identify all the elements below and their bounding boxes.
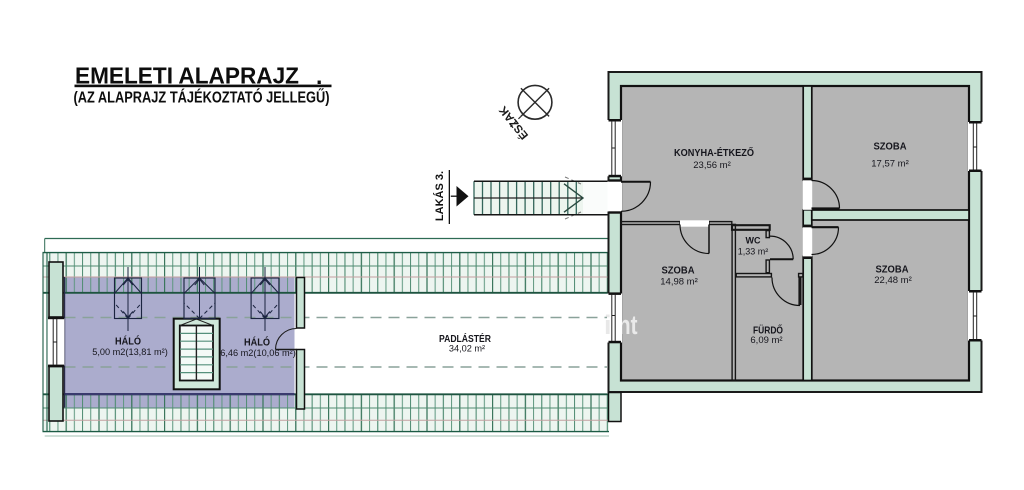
svg-text:14,98 m²: 14,98 m² [660,277,698,288]
svg-text:34,02 m²: 34,02 m² [449,344,485,354]
svg-text:5,00 m2(13,81 m²): 5,00 m2(13,81 m²) [92,347,168,357]
svg-text:22,48 m²: 22,48 m² [874,275,912,286]
svg-text:(AZ ALAPRAJZ TÁJÉKOZTATÓ JELLE: (AZ ALAPRAJZ TÁJÉKOZTATÓ JELLEGŰ) [74,87,330,106]
svg-text:nt: nt [618,310,638,340]
svg-text:KONYHA-ÉTKEZŐ: KONYHA-ÉTKEZŐ [674,146,754,159]
svg-text:HÁLÓ: HÁLÓ [244,336,270,349]
svg-text:SZOBA: SZOBA [874,141,907,153]
svg-text:23,56 m²: 23,56 m² [693,160,731,171]
svg-text:i: i [604,310,612,340]
svg-text:6,46 m2(10,06 m²): 6,46 m2(10,06 m²) [220,348,296,358]
svg-text:SZOBA: SZOBA [876,264,909,276]
svg-text:WC: WC [746,236,761,246]
svg-text:HÁLÓ: HÁLÓ [115,335,141,348]
svg-text:LAKÁS 3.: LAKÁS 3. [433,171,446,221]
svg-text:17,57 m²: 17,57 m² [871,159,909,170]
svg-text:6,09 m²: 6,09 m² [750,335,782,346]
svg-text:1,33 m²: 1,33 m² [738,247,769,257]
svg-text:SZOBA: SZOBA [662,265,695,277]
